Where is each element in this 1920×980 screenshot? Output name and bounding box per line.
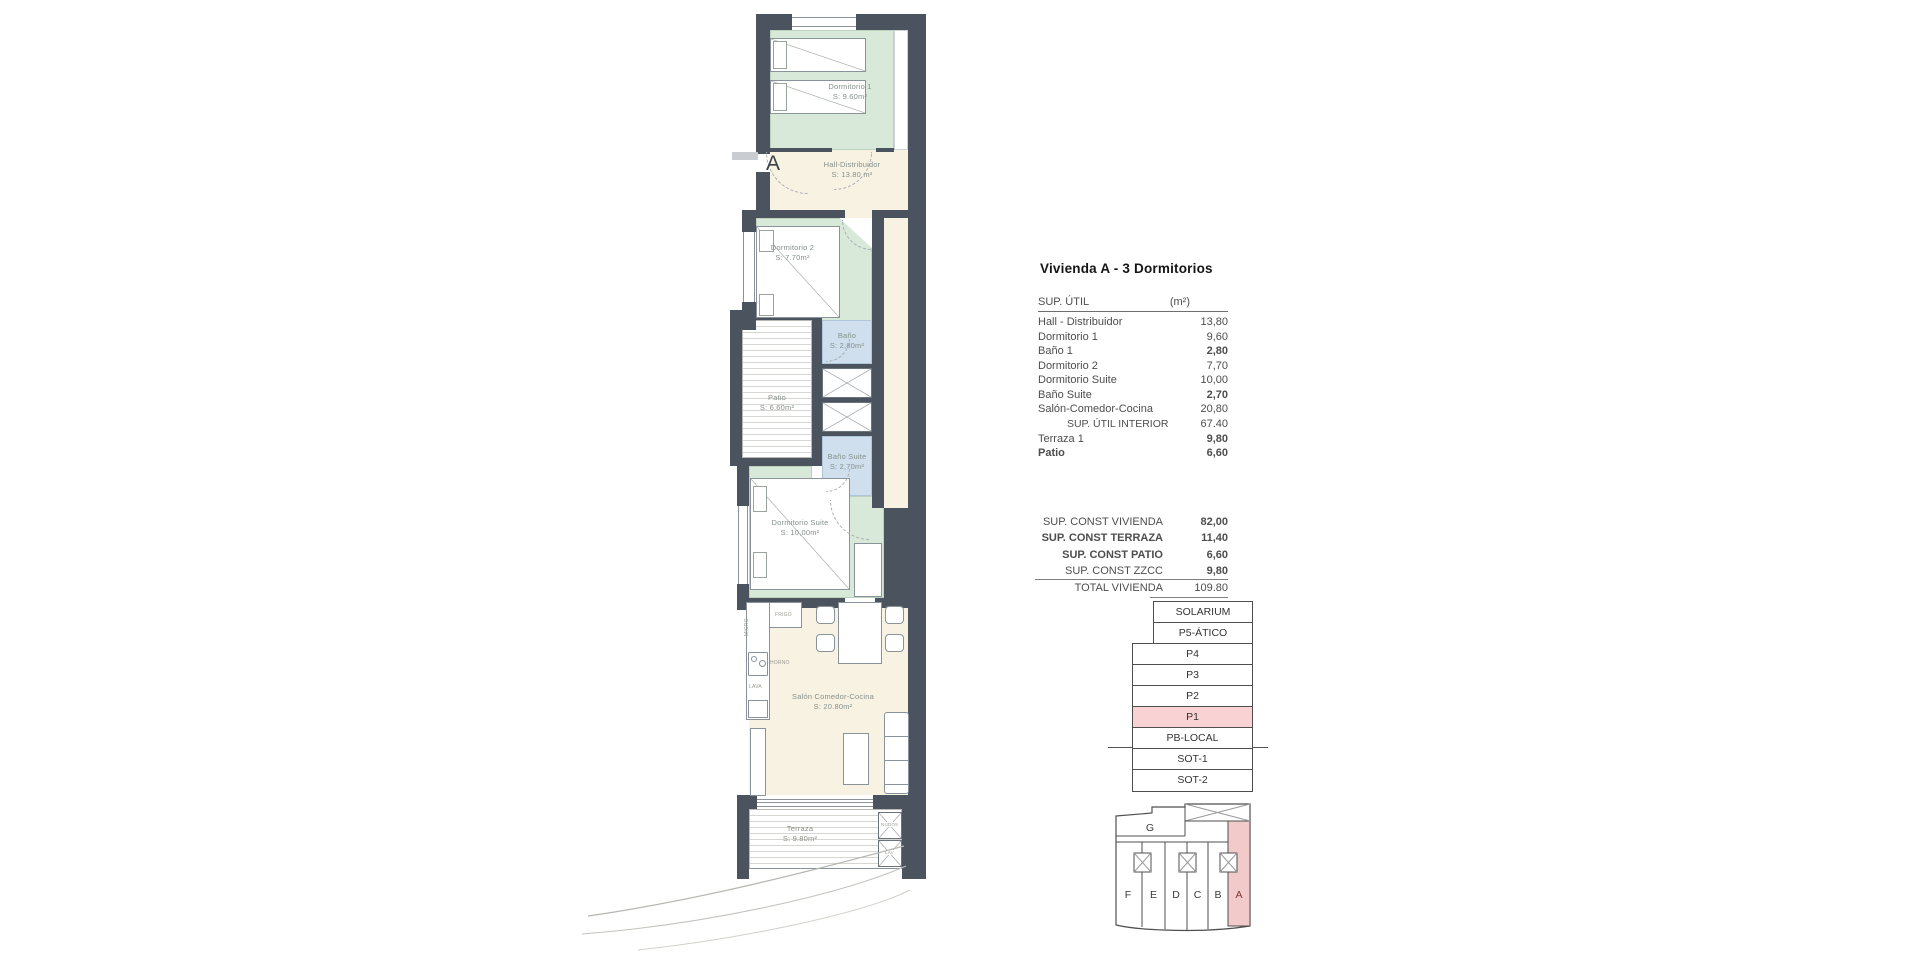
- wall-segment: [872, 210, 908, 218]
- wall-segment: [756, 14, 770, 154]
- totals-row: SUP. CONST VIVIENDA82,00: [1035, 514, 1228, 530]
- sink: [748, 700, 768, 718]
- chair: [816, 634, 835, 652]
- room-label-patio: Patio S: 6.60m²: [744, 393, 810, 413]
- total-underline: [1150, 597, 1228, 598]
- nudos-label: NUDOS: [881, 822, 898, 827]
- entrance-label: A: [766, 152, 780, 176]
- horno-label: HORNO: [770, 660, 790, 666]
- totals-row-total: TOTAL VIVIENDA109.80: [1035, 579, 1228, 596]
- window: [738, 506, 748, 584]
- table-row: Terraza 19,80: [1038, 432, 1228, 447]
- totals-table: SUP. CONST VIVIENDA82,00 SUP. CONST TERR…: [1035, 514, 1228, 596]
- bench: [854, 543, 882, 597]
- totals-row: SUP. CONST PATIO6,60: [1035, 547, 1228, 563]
- sup-util-table: SUP. ÚTIL (m²) Hall - Distribuidor13,80 …: [1038, 296, 1228, 461]
- totals-row: SUP. CONST TERRAZA11,40: [1035, 530, 1228, 546]
- coffee-table: [843, 733, 869, 785]
- wall-segment: [730, 310, 742, 466]
- entrance-step: [732, 152, 758, 160]
- level-pb-local: PB-LOCAL: [1132, 727, 1253, 750]
- wall-segment: [737, 795, 757, 809]
- table-header-label: SUP. ÚTIL: [1038, 296, 1089, 308]
- wall-segment: [822, 364, 872, 368]
- totals-row: SUP. CONST ZZCC9,80: [1035, 563, 1228, 579]
- tv-unit: [750, 728, 766, 796]
- level-solarium: SOLARIUM: [1153, 601, 1253, 624]
- wall-segment: [822, 398, 872, 402]
- room-patio: [742, 320, 812, 458]
- window: [792, 17, 856, 27]
- corridor: [884, 218, 908, 508]
- table-row: Hall - Distribuidor13,80: [1038, 315, 1228, 330]
- room-label-bano: Baño S: 2,80m²: [820, 331, 874, 351]
- table-row: Patio6,60: [1038, 446, 1228, 461]
- level-p4: P4: [1132, 643, 1253, 666]
- dining-table: [838, 602, 882, 664]
- table-row: Dormitorio 27,70: [1038, 359, 1228, 374]
- hob-burner: [751, 656, 757, 662]
- table-row: Baño 12,80: [1038, 344, 1228, 359]
- level-sot-2: SOT-2: [1132, 769, 1253, 792]
- level-p1-highlighted: P1: [1132, 706, 1253, 729]
- table-row-subtotal: SUP. ÚTIL INTERIOR67.40: [1038, 417, 1228, 432]
- table-row: Dormitorio 19,60: [1038, 330, 1228, 345]
- wall-segment: [822, 432, 872, 436]
- wall-segment: [856, 14, 908, 30]
- footprint-label-e: E: [1150, 889, 1157, 901]
- closet: [822, 368, 872, 398]
- building-levels: SOLARIUM P5-ÁTICO P4 P3 P2 P1 PB-LOCAL S…: [1132, 601, 1253, 792]
- window-midline: [757, 802, 873, 803]
- wall-segment: [873, 795, 926, 809]
- table-header: SUP. ÚTIL (m²): [1038, 296, 1228, 312]
- page: A Dormitorio 1 S: 9.60m² Hall-Distribuid…: [0, 0, 1920, 980]
- footprint-keyplan: G F E D C B A: [1100, 798, 1260, 938]
- room-label-hall: Hall-Distribuidor S: 13.80 m²: [802, 160, 902, 180]
- wall-segment: [884, 508, 908, 608]
- site-boundary-curves: [580, 838, 930, 958]
- closet: [822, 402, 872, 432]
- wall-segment: [876, 148, 894, 152]
- lava-label: LAVA: [749, 684, 762, 690]
- level-p3: P3: [1132, 664, 1253, 687]
- level-p2: P2: [1132, 685, 1253, 708]
- level-p5-atico: P5-ÁTICO: [1153, 622, 1253, 645]
- fridge-label: FRIGO: [775, 612, 792, 618]
- room-label-dormitorio-suite: Dormitorio Suite S: 10,00m²: [752, 518, 848, 538]
- footprint-unit-a-highlight: [1228, 821, 1250, 926]
- table-row: Dormitorio Suite10,00: [1038, 373, 1228, 388]
- wall-segment: [908, 14, 926, 804]
- footprint-label-f: F: [1125, 889, 1131, 901]
- table-row: Salón-Comedor-Cocina20,80: [1038, 402, 1228, 417]
- sofa-cushion-line: [885, 760, 908, 761]
- wall-segment: [737, 466, 749, 506]
- wall-segment: [742, 210, 845, 218]
- footprint-label-c: C: [1194, 889, 1202, 901]
- hob-burner: [759, 660, 766, 667]
- room-label-salon: Salón Comedor-Cocina S: 20.80m²: [773, 692, 893, 712]
- level-sot-1: SOT-1: [1132, 748, 1253, 771]
- table-header-unit: (m²): [1170, 296, 1228, 308]
- pillow: [759, 294, 774, 316]
- sofa-cushion-line: [885, 736, 908, 737]
- sofa: [884, 712, 909, 794]
- wall-segment: [730, 458, 822, 466]
- room-label-dormitorio-1: Dormitorio 1 S: 9.60m²: [800, 82, 900, 102]
- page-title: Vivienda A - 3 Dormitorios: [1040, 261, 1213, 276]
- room-label-dormitorio-2: Dormitorio 2 S: 7.70m²: [745, 243, 840, 263]
- table-row: Baño Suite2,70: [1038, 388, 1228, 403]
- chair: [885, 634, 904, 652]
- chair: [885, 606, 904, 624]
- pillow: [773, 83, 787, 111]
- footprint-label-d: D: [1172, 889, 1180, 901]
- pillow: [753, 552, 767, 578]
- micro-label: MICRO: [744, 618, 750, 636]
- floor-plan: A Dormitorio 1 S: 9.60m² Hall-Distribuid…: [0, 0, 960, 980]
- chair: [816, 606, 835, 624]
- wall-segment: [742, 210, 756, 232]
- footprint-label-a: A: [1235, 889, 1242, 901]
- pillow: [753, 486, 767, 512]
- sofa-cushion-line: [885, 784, 908, 785]
- room-label-bano-suite: Baño Suite S: 2,70m²: [820, 452, 874, 472]
- pillow: [773, 41, 787, 69]
- sliding-window: [757, 799, 873, 807]
- footprint-label-b: B: [1214, 889, 1221, 901]
- footprint-label-g: G: [1146, 822, 1154, 834]
- footprint-elevators: [1134, 853, 1237, 872]
